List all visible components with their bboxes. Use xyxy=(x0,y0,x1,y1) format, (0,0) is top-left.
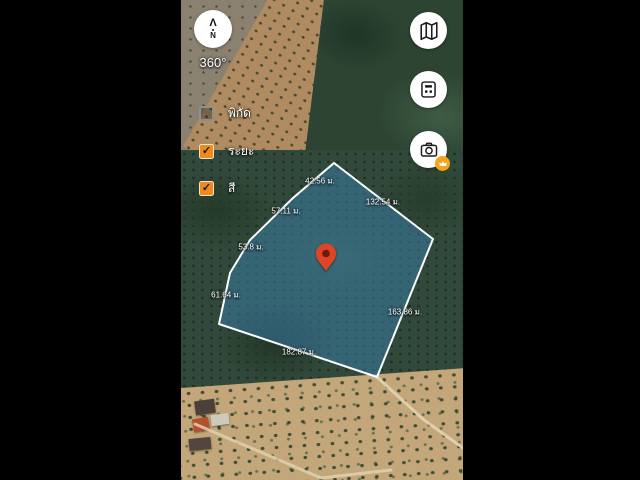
satellite-map[interactable]: 42.56 ม. 132.54 ม. 57.11 ม. 53.8 ม. 61.6… xyxy=(181,0,463,480)
screenshot-stage: 42.56 ม. 132.54 ม. 57.11 ม. 53.8 ม. 61.6… xyxy=(0,0,640,480)
edge-length-label: 182.87 ม. xyxy=(282,346,316,359)
edge-length-label: 57.11 ม. xyxy=(271,205,300,218)
layer-row-coordinates: พิกัด xyxy=(199,105,251,121)
layer-label-color: สี xyxy=(228,179,235,198)
heading-degrees-label: 360° xyxy=(189,55,237,70)
letterbox-right xyxy=(463,0,640,480)
edge-length-label: 42.56 ม. xyxy=(305,175,335,188)
letterbox-left xyxy=(0,0,181,480)
check-icon: ✓ xyxy=(202,183,211,194)
north-arrow-icon: Λ xyxy=(209,19,216,28)
map-style-button[interactable] xyxy=(410,12,447,49)
camera-icon xyxy=(418,139,440,161)
premium-badge xyxy=(435,156,450,171)
folded-map-icon xyxy=(418,20,440,42)
dirt-road xyxy=(377,377,463,448)
dirt-road-2 xyxy=(195,424,391,478)
calculator-button[interactable] xyxy=(410,71,447,108)
crown-icon xyxy=(438,159,448,169)
compass-button[interactable]: Λ N xyxy=(194,10,232,48)
checkbox-distance[interactable]: ✓ xyxy=(199,144,214,159)
north-letter: N xyxy=(210,32,216,40)
checkbox-coordinates[interactable] xyxy=(199,106,214,121)
edge-length-label: 163.86 ม. xyxy=(388,306,422,319)
layer-row-color: ✓ สี xyxy=(199,180,235,196)
edge-length-label: 132.54 ม. xyxy=(366,196,400,209)
camera-button[interactable] xyxy=(410,131,447,168)
edge-length-label: 61.64 ม. xyxy=(211,289,241,302)
checkbox-color[interactable]: ✓ xyxy=(199,181,214,196)
calculator-icon xyxy=(418,79,439,100)
check-icon: ✓ xyxy=(202,146,211,157)
layer-row-distance: ✓ ระยะ xyxy=(199,143,254,159)
edge-length-label: 53.8 ม. xyxy=(238,241,263,254)
layer-label-coordinates: พิกัด xyxy=(228,104,251,123)
layer-label-distance: ระยะ xyxy=(228,142,254,161)
